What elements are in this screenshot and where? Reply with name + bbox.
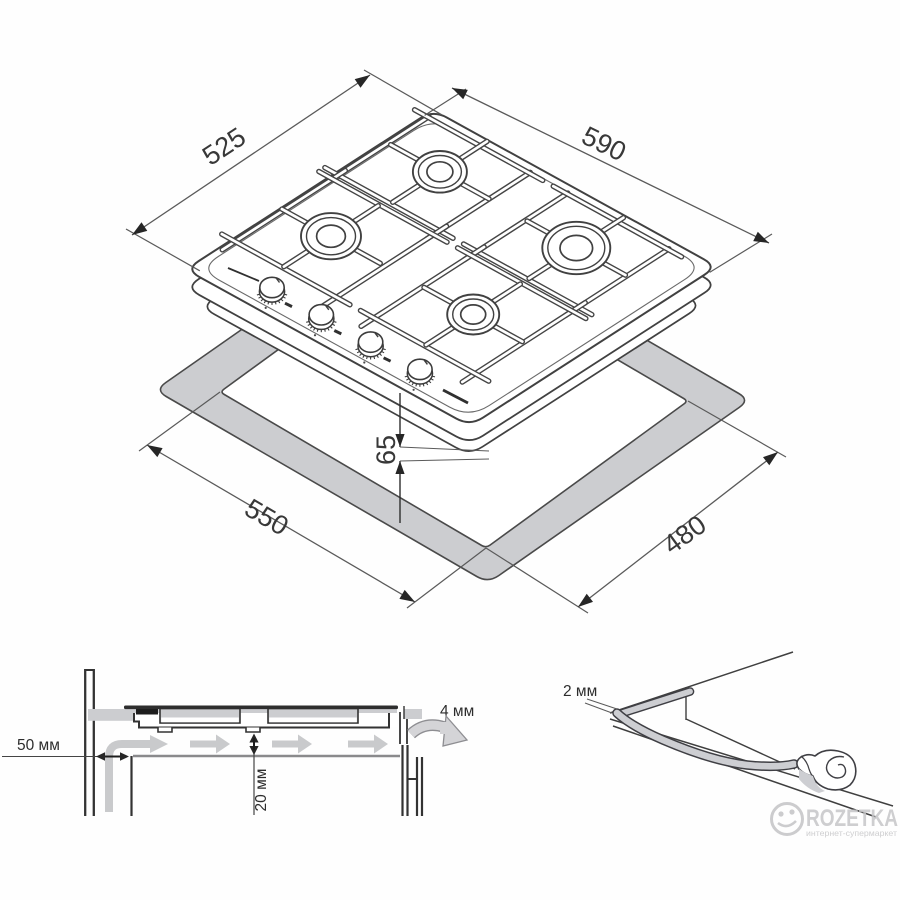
svg-text:интернет-супермаркет: интернет-супермаркет — [806, 828, 897, 838]
svg-text:2 мм: 2 мм — [563, 683, 597, 700]
svg-text:50 мм: 50 мм — [17, 737, 60, 754]
svg-text:20 мм: 20 мм — [253, 769, 270, 812]
svg-text:65: 65 — [371, 435, 401, 465]
svg-text:4 мм: 4 мм — [440, 703, 474, 720]
